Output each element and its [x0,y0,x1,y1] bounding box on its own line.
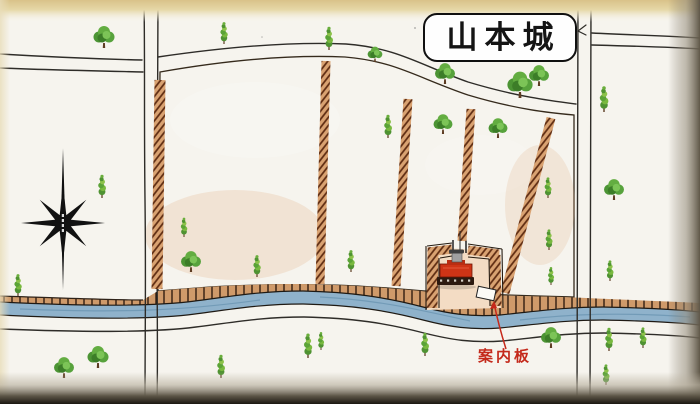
castle-map-canvas [0,0,700,404]
paper-background [0,0,700,404]
map-title-box: 山本城 [423,13,577,62]
info-board-label: 案内板 [478,350,532,365]
right-road [590,0,591,404]
map-title-text: 山本城 [440,22,561,53]
map-page: 山本城 案内板 [0,0,700,404]
